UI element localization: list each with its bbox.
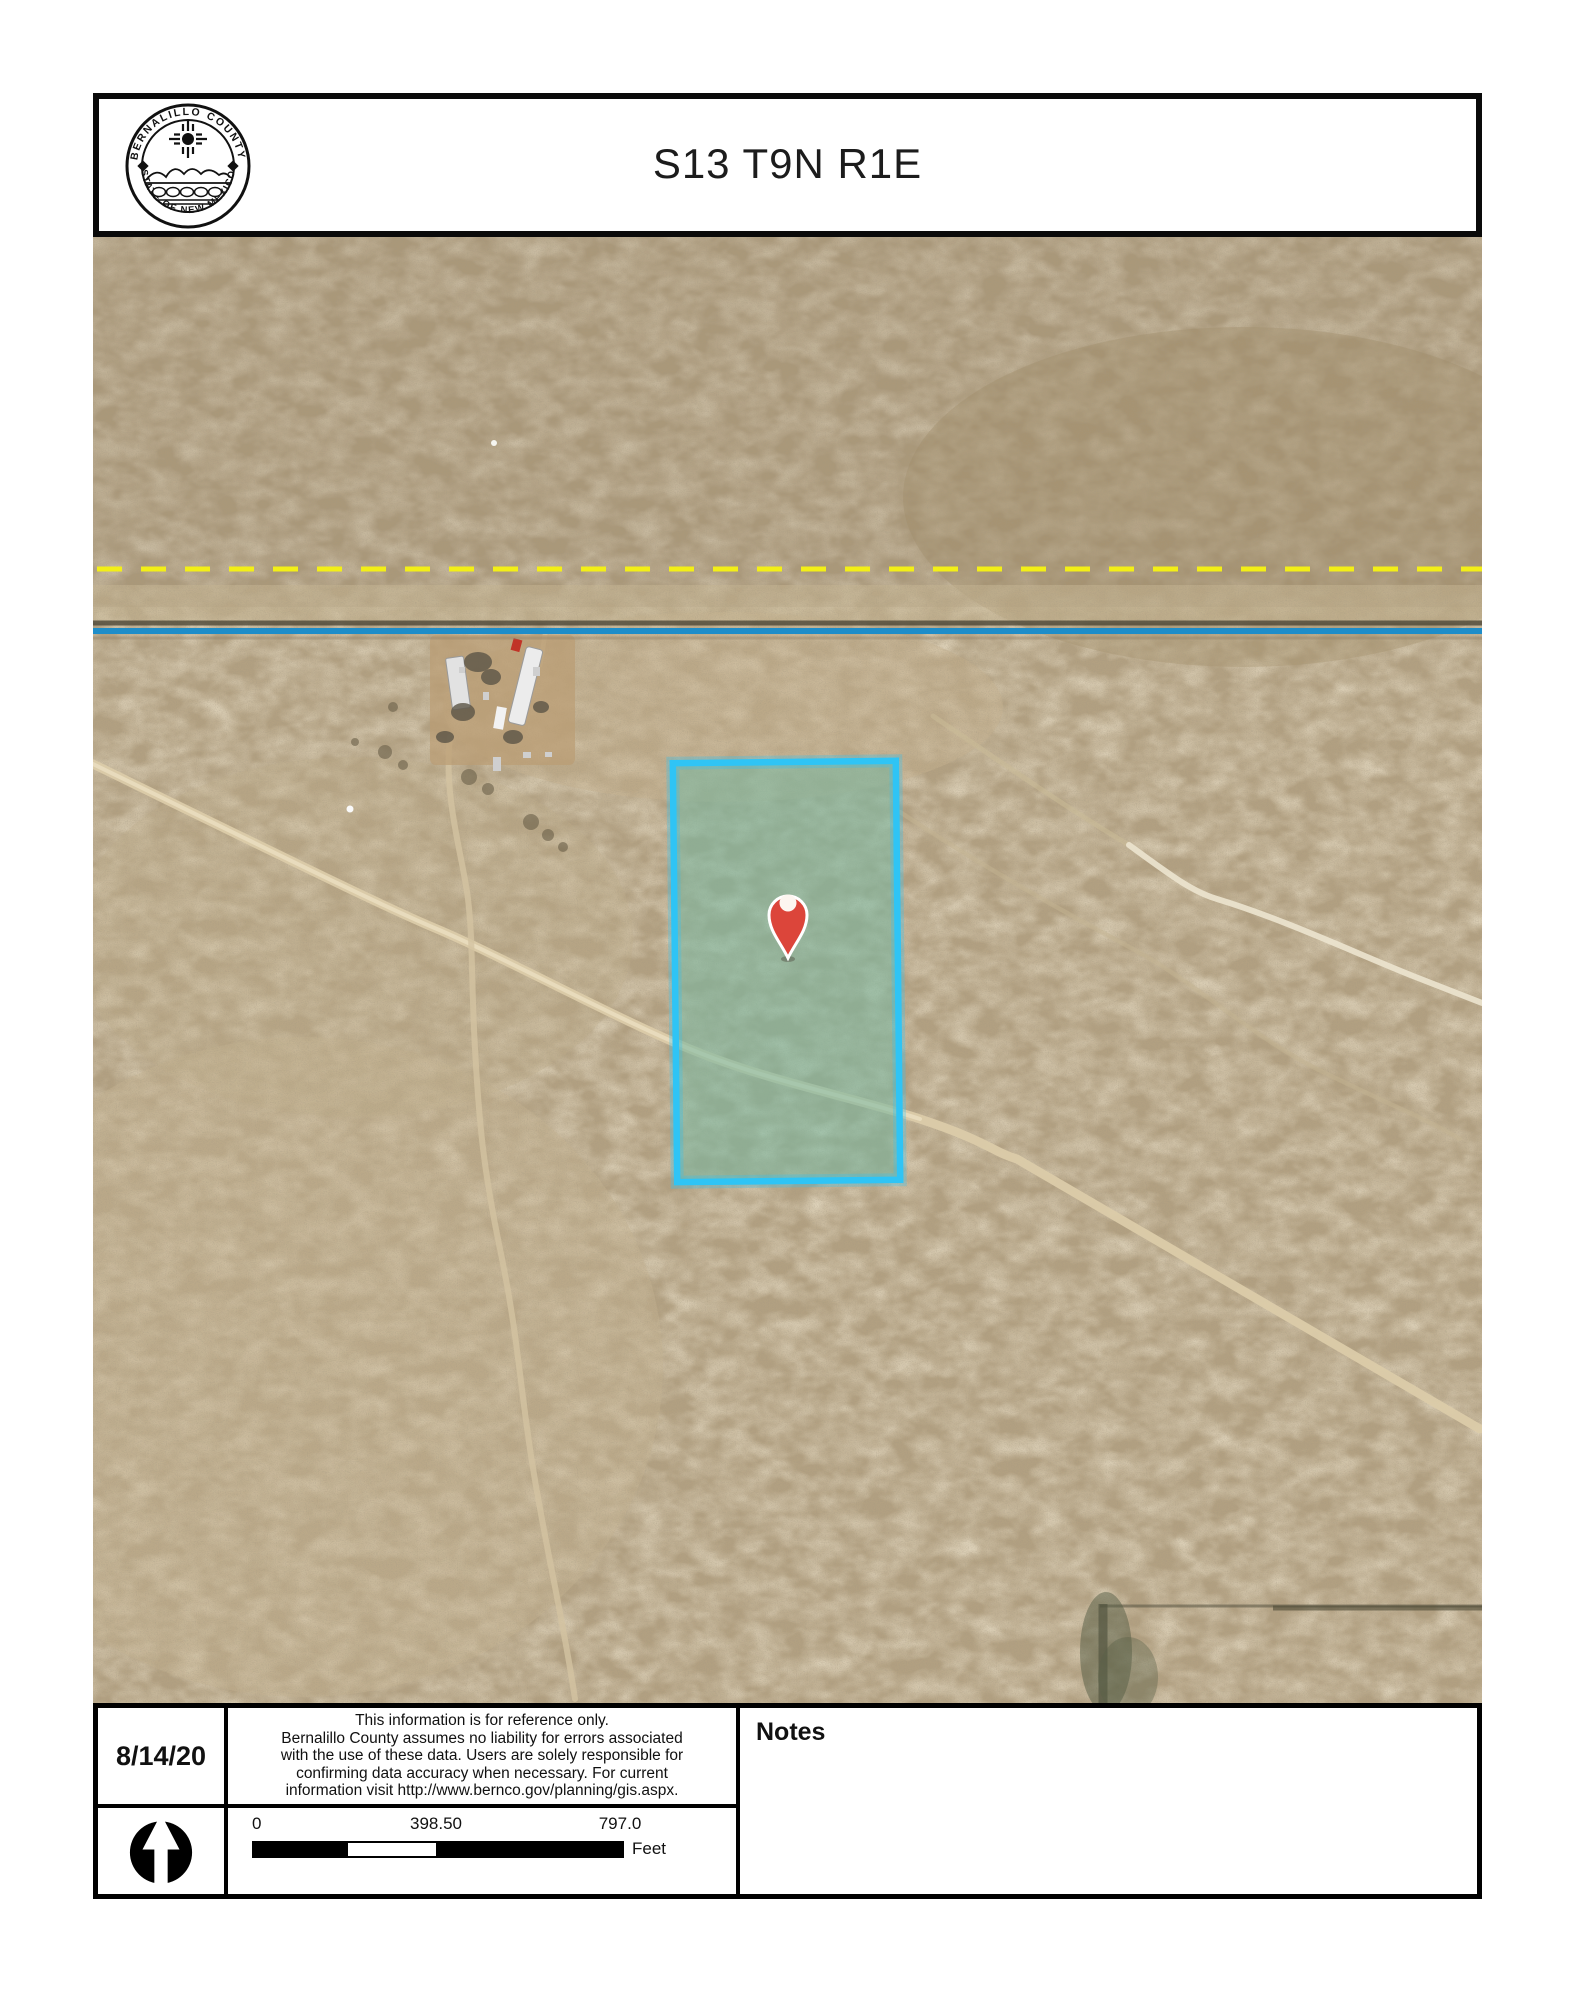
- north-arrow-icon: [124, 1812, 198, 1890]
- notes-section: Notes: [740, 1708, 1477, 1894]
- disclaimer-line: information visit http://www.bernco.gov/…: [286, 1782, 679, 1800]
- map-printout-page: BERNALILLO COUNTY STATE OF NEW MEXICO: [0, 0, 1576, 2000]
- parcel-highlight: [673, 761, 900, 1182]
- parcel-fill: [673, 761, 900, 1182]
- scale-bar-section: 0 398.50 797.0 Feet: [228, 1808, 740, 1894]
- header-bar: BERNALILLO COUNTY STATE OF NEW MEXICO: [93, 93, 1482, 237]
- map-date: 8/14/20: [98, 1708, 228, 1808]
- disclaimer-line: confirming data accuracy when necessary.…: [296, 1765, 668, 1783]
- aerial-map: [93, 237, 1482, 1703]
- disclaimer-line: with the use of these data. Users are so…: [281, 1747, 683, 1765]
- north-arrow-cell: [98, 1808, 228, 1894]
- seal-sheep-row: [153, 188, 222, 197]
- page-title: S13 T9N R1E: [99, 140, 1476, 188]
- disclaimer-text: This information is for reference only. …: [228, 1708, 740, 1808]
- scale-bar-segment-black: [254, 1843, 346, 1856]
- scale-label-mid: 398.50: [410, 1814, 462, 1834]
- footer-table: 8/14/20 This information is for referenc…: [93, 1703, 1482, 1899]
- scale-bar-segment-black: [438, 1843, 622, 1856]
- disclaimer-line: This information is for reference only.: [355, 1712, 609, 1730]
- disclaimer-line: Bernalillo County assumes no liability f…: [281, 1730, 682, 1748]
- scale-label-zero: 0: [252, 1814, 261, 1834]
- scale-unit-label: Feet: [632, 1839, 666, 1859]
- notes-label: Notes: [756, 1718, 825, 1746]
- scale-bar-segment-white: [346, 1843, 438, 1856]
- aerial-map-canvas: [93, 237, 1482, 1703]
- scale-bar: [252, 1841, 624, 1858]
- scale-label-max: 797.0: [599, 1814, 642, 1834]
